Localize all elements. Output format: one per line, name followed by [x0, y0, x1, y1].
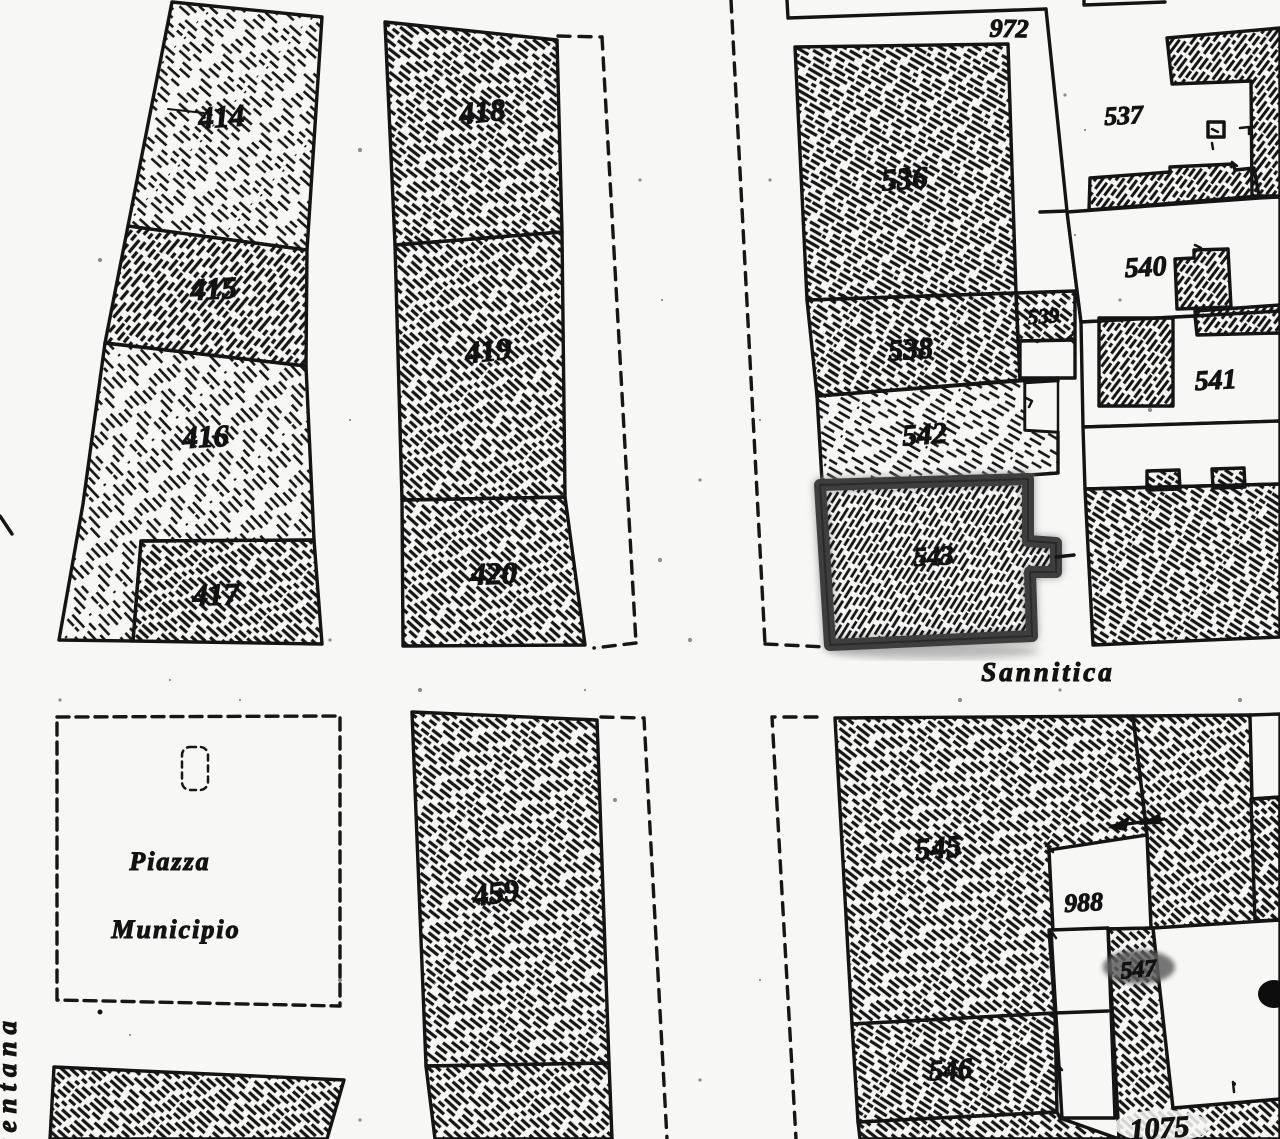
svg-text:543: 543 [913, 540, 955, 572]
svg-text:Sannitica: Sannitica [981, 657, 1115, 687]
svg-text:rentana: rentana [0, 1014, 22, 1139]
svg-text:538: 538 [887, 331, 934, 367]
svg-text:420: 420 [469, 555, 518, 592]
svg-text:541: 541 [1194, 364, 1238, 397]
svg-text:540: 540 [1124, 251, 1168, 284]
svg-text:536: 536 [880, 159, 929, 197]
svg-text:539: 539 [1027, 303, 1061, 329]
svg-text:545: 545 [914, 828, 963, 867]
svg-text:547: 547 [1119, 955, 1158, 984]
svg-text:546: 546 [928, 1053, 974, 1088]
svg-text:Piazza: Piazza [128, 847, 210, 876]
svg-text:988: 988 [1063, 887, 1103, 918]
svg-text:542: 542 [901, 416, 948, 452]
svg-text:415: 415 [188, 270, 237, 307]
svg-text:418: 418 [456, 92, 507, 132]
svg-text:419: 419 [462, 331, 513, 371]
svg-text:Municipio: Municipio [110, 915, 240, 944]
svg-text:417: 417 [191, 576, 241, 613]
svg-text:537: 537 [1103, 100, 1144, 131]
svg-text:459: 459 [469, 872, 521, 913]
svg-text:972: 972 [989, 14, 1029, 44]
svg-text:1075: 1075 [1128, 1110, 1190, 1139]
svg-text:414: 414 [196, 97, 246, 135]
svg-text:416: 416 [180, 418, 230, 455]
